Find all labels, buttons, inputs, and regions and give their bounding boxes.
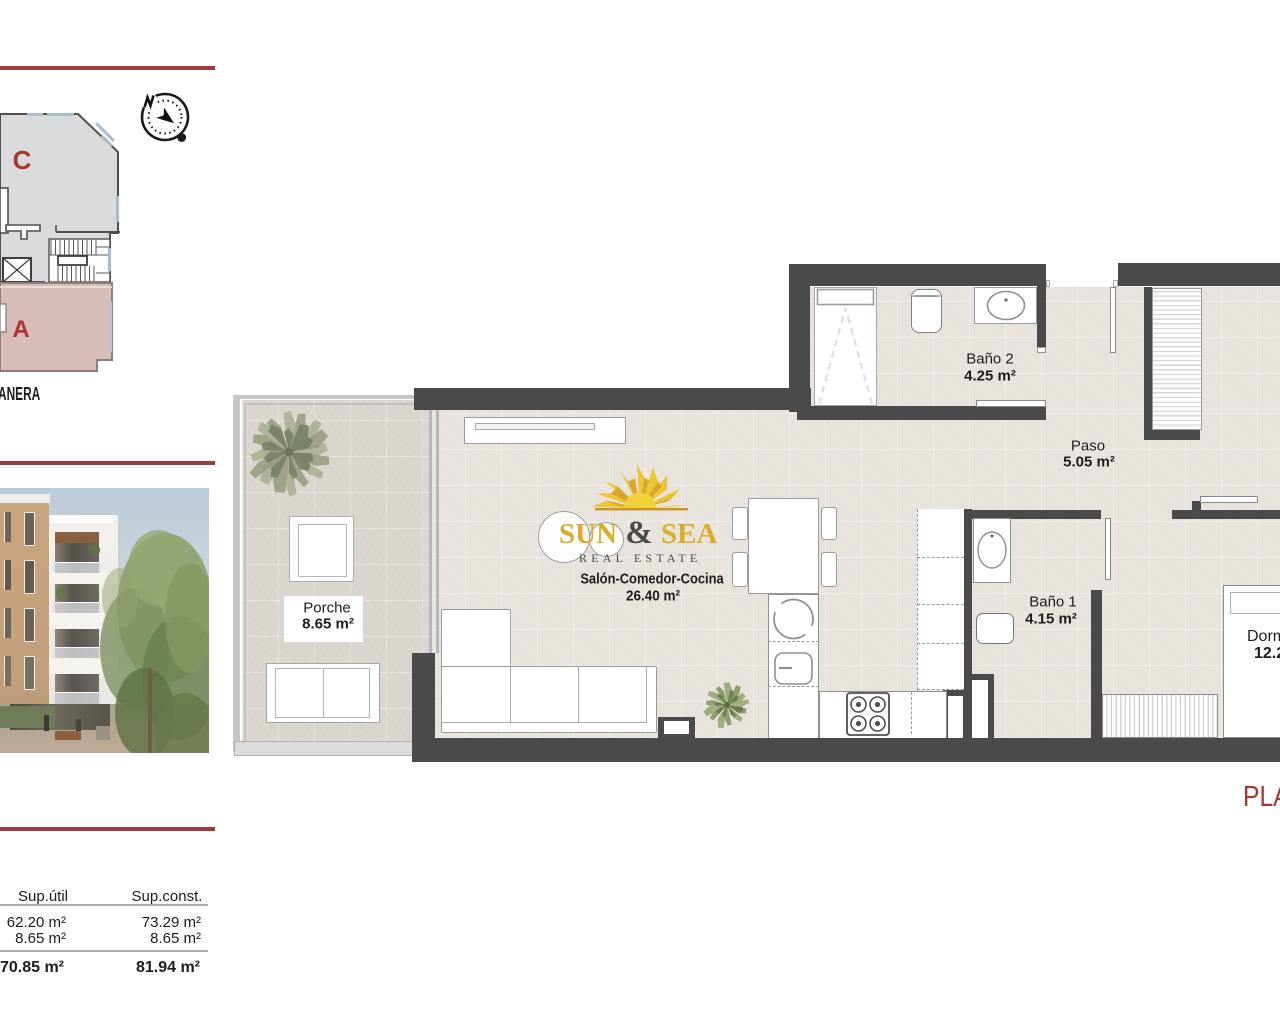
svg-text:A: A — [12, 316, 29, 343]
svg-text:C: C — [13, 145, 32, 175]
